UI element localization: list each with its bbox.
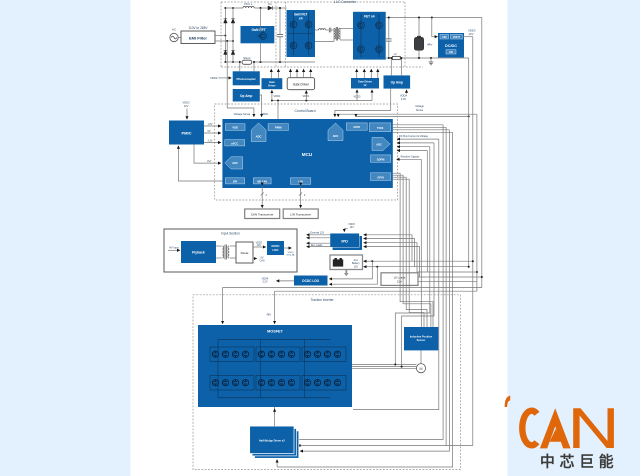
svg-text:中芯巨能: 中芯巨能: [540, 453, 618, 471]
svg-text:VDD1: VDD1: [274, 94, 281, 98]
svg-text:VDD2: VDD2: [261, 112, 268, 116]
svg-text:DC Bus Current & Voltage: DC Bus Current & Voltage: [399, 135, 429, 138]
svg-text:Vref: Vref: [207, 160, 212, 163]
svg-text:SPI: SPI: [233, 179, 238, 183]
svg-text:Half-Bridge Driver x3: Half-Bridge Driver x3: [259, 438, 285, 442]
svg-text:VDD5: VDD5: [288, 252, 295, 254]
svg-text:D1: D1: [268, 2, 272, 6]
svg-text:ADC: ADC: [232, 161, 238, 165]
svg-text:EN: EN: [449, 50, 453, 54]
svg-text:PWM: PWM: [275, 126, 282, 130]
svg-text:MOSFET: MOSFET: [267, 330, 284, 334]
svg-text:Control Board: Control Board: [295, 109, 316, 113]
svg-text:12V: 12V: [184, 104, 189, 108]
svg-text:Gate Driver: Gate Driver: [293, 83, 310, 87]
svg-text:Op Amp: Op Amp: [391, 81, 403, 85]
svg-text:48V: 48V: [267, 313, 272, 316]
svg-text:Gate: Gate: [269, 80, 275, 84]
svg-text:Op Amp: Op Amp: [240, 94, 252, 98]
svg-text:SDFM: SDFM: [377, 157, 385, 161]
svg-text:GPIO: GPIO: [353, 125, 360, 129]
svg-text:HV Input: HV Input: [169, 247, 179, 250]
svg-text:VDD3: VDD3: [183, 101, 190, 105]
svg-text:3.3V: 3.3V: [208, 140, 213, 143]
svg-text:External 12V: External 12V: [310, 232, 324, 235]
svg-text:Flyback: Flyback: [192, 251, 205, 255]
svg-text:5V: 5V: [208, 130, 211, 133]
svg-text:3.2V: 3.2V: [263, 281, 268, 284]
svg-text:1.8V: 1.8V: [208, 123, 213, 126]
svg-text:MD-CAN: MD-CAN: [257, 180, 267, 183]
svg-text:ADC: ADC: [376, 142, 382, 146]
svg-text:LDO: LDO: [273, 248, 280, 252]
svg-text:VIN: VIN: [442, 35, 446, 39]
svg-text:DC/DC: DC/DC: [445, 44, 457, 48]
svg-text:Voltage: Voltage: [415, 104, 424, 108]
svg-text:TX03: TX03: [377, 126, 384, 130]
svg-text:DCDC LDO: DCDC LDO: [302, 279, 319, 283]
svg-text:Input Section: Input Section: [221, 231, 240, 235]
svg-text:Shunt: Shunt: [243, 56, 251, 60]
svg-text:48V: 48V: [427, 42, 432, 46]
svg-text:ADC: ADC: [333, 134, 339, 138]
svg-text:VDD: VDD: [232, 126, 238, 130]
svg-text:GPIO: GPIO: [377, 175, 384, 179]
svg-text:12V: 12V: [354, 266, 359, 269]
svg-text:110V to 265V: 110V to 265V: [188, 26, 208, 30]
svg-text:Sensor: Sensor: [417, 338, 426, 342]
svg-text:x4: x4: [299, 17, 303, 21]
svg-text:12V: 12V: [350, 226, 355, 229]
svg-text:3.3V: 3.3V: [401, 97, 407, 101]
svg-text:Driver: Driver: [268, 84, 276, 88]
svg-text:PFC L: PFC L: [245, 2, 253, 6]
svg-text:Voltage Sense: Voltage Sense: [234, 112, 251, 116]
svg-text:Traction Inverter: Traction Inverter: [310, 298, 334, 302]
svg-text:FET x4: FET x4: [364, 14, 375, 18]
svg-text:CAN Transceiver: CAN Transceiver: [251, 212, 274, 216]
svg-text:MCU: MCU: [302, 152, 313, 157]
svg-text:Resolver Signals: Resolver Signals: [401, 155, 421, 158]
svg-text:VDD2: VDD2: [210, 76, 218, 80]
svg-text:ADC: ADC: [256, 135, 262, 139]
svg-text:LLC Converter: LLC Converter: [334, 0, 357, 4]
svg-text:Inductive Position: Inductive Position: [410, 334, 433, 338]
svg-text:12V: 12V: [397, 279, 402, 283]
svg-text:M: M: [420, 367, 423, 371]
svg-text:LIN Transceiver: LIN Transceiver: [290, 212, 311, 216]
svg-text:VDDA: VDDA: [400, 94, 407, 98]
svg-text:LIN: LIN: [298, 180, 302, 184]
svg-text:Diode: Diode: [241, 251, 249, 255]
svg-text:aVCC: aVCC: [231, 141, 238, 145]
svg-text:VOUT: VOUT: [453, 35, 461, 39]
svg-text:5V/0.3A: 5V/0.3A: [287, 254, 295, 257]
svg-text:PMIC: PMIC: [182, 131, 192, 136]
svg-text:Photocoupler: Photocoupler: [237, 77, 257, 81]
svg-text:12V: 12V: [469, 32, 474, 36]
svg-text:Sense: Sense: [416, 108, 424, 112]
svg-text:Gate Driver: Gate Driver: [358, 80, 372, 84]
svg-text:CAN: CAN: [259, 260, 264, 263]
svg-text:IPD: IPD: [341, 239, 348, 244]
svg-text:GaN FET: GaN FET: [252, 28, 267, 32]
svg-text:EMI Filter: EMI Filter: [189, 35, 207, 40]
